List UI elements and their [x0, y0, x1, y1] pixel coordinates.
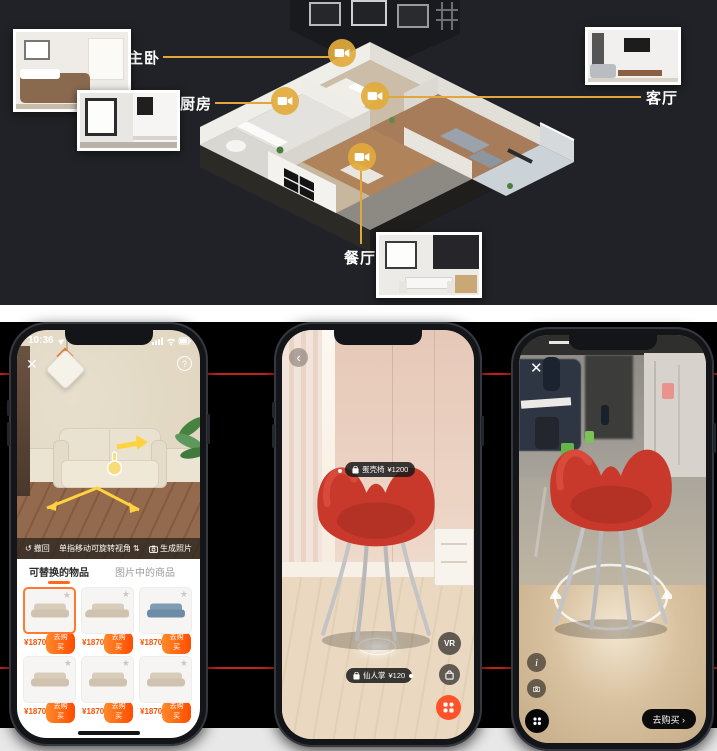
sofa-image	[147, 603, 185, 618]
product-card[interactable]: ★ ¥1870去购买	[81, 656, 134, 720]
product-price: ¥1870	[82, 638, 104, 647]
wifi-icon	[168, 340, 175, 344]
camera-icon	[533, 685, 540, 693]
volume-button	[7, 400, 10, 416]
go-buy-button[interactable]: 去购买 ›	[642, 709, 697, 729]
product-price: ¥1870	[24, 707, 46, 716]
favorite-star-icon[interactable]: ★	[122, 658, 130, 669]
rotate-icon: ⇅	[133, 544, 140, 553]
hand-cursor-icon	[108, 452, 122, 475]
buy-button[interactable]: 去购买	[104, 632, 133, 654]
living-room-photo-thumbnail	[585, 27, 681, 85]
tag-anchor-dot	[409, 674, 413, 678]
room-label-master-bedroom: 主卧	[128, 47, 160, 68]
dining-room-photo-thumbnail	[376, 232, 482, 298]
kitchen-photo-thumbnail	[77, 90, 180, 151]
connector-line-master-bedroom	[163, 56, 330, 58]
close-button[interactable]: ✕	[26, 356, 38, 373]
power-button	[481, 416, 484, 446]
info-button[interactable]: i	[527, 653, 546, 672]
dots-icon	[532, 716, 542, 726]
tab-items-in-photo[interactable]: 图片中的商品	[115, 564, 175, 579]
favorite-star-icon[interactable]: ★	[122, 589, 130, 600]
phone-middle: ‹ 蛋壳椅¥1200 仙人掌¥120 VR	[274, 322, 482, 747]
product-card[interactable]: ★ ¥1870去购买	[23, 587, 76, 651]
sofa-image	[89, 672, 127, 687]
item-price-tag[interactable]: 蛋壳椅¥1200	[345, 462, 415, 477]
favorite-star-icon[interactable]: ★	[64, 658, 72, 669]
sofa-image	[31, 603, 69, 618]
sofa-image	[31, 672, 69, 687]
favorite-star-icon[interactable]: ★	[180, 589, 188, 600]
camera-icon	[149, 545, 158, 553]
vr-button[interactable]: VR	[438, 632, 461, 655]
product-card[interactable]: ★ ¥1870去购买	[81, 587, 134, 651]
room-label-dining-room: 餐厅	[344, 247, 376, 268]
product-panel: 可替换的物品 图片中的商品 ★ ¥1870去购买 ★ ¥1870去购买 ★ ¥1…	[17, 559, 200, 738]
product-price: ¥1870	[82, 707, 104, 716]
favorite-star-icon[interactable]: ★	[180, 658, 188, 669]
status-bar: 10:36	[17, 334, 200, 348]
cart-icon	[353, 672, 360, 680]
sofa-image	[147, 672, 185, 687]
screenshot-button[interactable]	[527, 679, 546, 698]
status-icons	[152, 336, 192, 346]
product-price: ¥1870	[24, 638, 46, 647]
buy-button[interactable]: 去购买	[46, 701, 75, 723]
battery-icon	[179, 338, 191, 344]
product-grid-button[interactable]	[436, 695, 461, 720]
camera-icon-kitchen[interactable]	[271, 87, 299, 115]
camera-icon-dining-room[interactable]	[348, 143, 376, 171]
ar-room-scene	[17, 330, 200, 559]
back-button[interactable]: ‹	[289, 348, 308, 367]
buy-button[interactable]: 去购买	[162, 632, 191, 654]
left-phone-screen: 10:36 ✕ ? ↺ 撤回 单指移动可旋转视角 ⇅	[17, 330, 200, 738]
buy-button[interactable]: 去购买	[46, 632, 75, 654]
camera-icon-living-room[interactable]	[361, 82, 389, 110]
undo-icon: ↺	[25, 544, 32, 553]
connector-line-dining-room	[360, 171, 362, 244]
phone-notch	[334, 330, 422, 345]
generate-photo-button[interactable]: 生成照片	[149, 543, 192, 554]
cart-icon	[352, 466, 359, 474]
phone-left: 10:36 ✕ ? ↺ 撤回 单指移动可旋转视角 ⇅	[9, 322, 208, 746]
undo-button[interactable]: ↺ 撤回	[25, 543, 50, 554]
volume-button	[272, 424, 275, 448]
floor-item-tag[interactable]: 仙人掌¥120	[346, 668, 412, 683]
tag-anchor-dot	[338, 469, 342, 473]
bag-icon	[445, 670, 454, 680]
phone-right: ✕ i 去购买 ›	[511, 327, 714, 751]
volume-button	[7, 422, 10, 446]
ar-guides	[17, 330, 200, 559]
person	[543, 357, 560, 391]
favorite-star-icon[interactable]: ★	[63, 590, 71, 601]
close-button[interactable]: ✕	[530, 359, 543, 377]
tabs: 可替换的物品 图片中的商品	[17, 559, 200, 583]
grid-icon	[443, 702, 454, 713]
ar-toolbar: ↺ 撤回 单指移动可旋转视角 ⇅ 生成照片	[17, 538, 200, 559]
buy-button[interactable]: 去购买	[162, 701, 191, 723]
product-card[interactable]: ★ ¥1870去购买	[139, 656, 192, 720]
status-time: 10:36	[28, 335, 54, 346]
camera-icon-master-bedroom[interactable]	[328, 39, 356, 67]
location-arrow-icon	[58, 337, 66, 345]
power-button	[207, 414, 210, 444]
connector-line-kitchen	[215, 102, 273, 104]
phone-notch	[569, 335, 657, 350]
tab-replaceable-items[interactable]: 可替换的物品	[29, 564, 89, 579]
product-card[interactable]: ★ ¥1870去购买	[23, 656, 76, 720]
bag-button[interactable]	[439, 664, 460, 685]
buy-button[interactable]: 去购买	[104, 701, 133, 723]
connector-line-living-room	[388, 96, 641, 98]
room-label-living-room: 客厅	[646, 87, 678, 108]
product-grid: ★ ¥1870去购买 ★ ¥1870去购买 ★ ¥1870去购买 ★ ¥1870…	[23, 587, 194, 720]
power-button	[713, 423, 716, 453]
gesture-hint: 单指移动可旋转视角 ⇅	[59, 543, 140, 554]
right-phone-screen: ✕ i 去购买 ›	[519, 335, 706, 743]
volume-button	[272, 402, 275, 418]
product-price: ¥1870	[140, 707, 162, 716]
sofa-image	[89, 603, 127, 618]
help-button[interactable]: ?	[177, 356, 192, 371]
room-label-kitchen: 厨房	[180, 93, 212, 114]
product-card[interactable]: ★ ¥1870去购买	[139, 587, 192, 651]
signal-icon	[152, 338, 163, 346]
floorplan-section: 主卧 厨房 客厅 餐厅	[0, 0, 717, 305]
promo-graphic: 主卧 厨房 客厅 餐厅	[0, 0, 717, 751]
product-price: ¥1870	[140, 638, 162, 647]
middle-phone-screen: ‹ 蛋壳椅¥1200 仙人掌¥120 VR	[282, 330, 474, 739]
menu-dots-button[interactable]	[525, 709, 549, 733]
home-indicator[interactable]	[78, 731, 140, 735]
ar-chair[interactable]	[533, 421, 689, 639]
